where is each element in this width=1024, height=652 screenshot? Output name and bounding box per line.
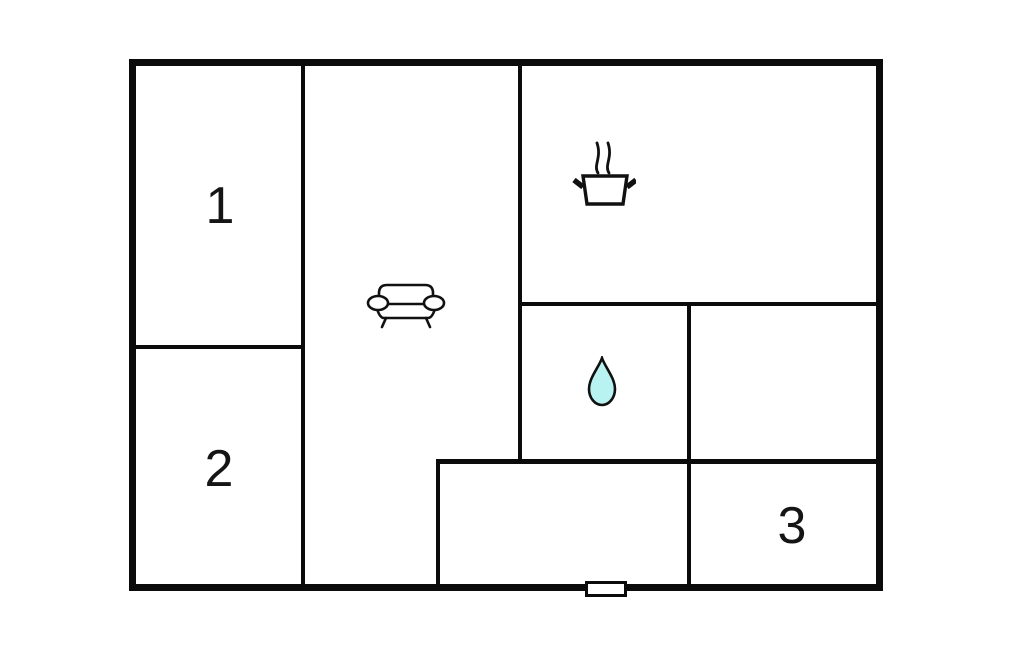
wall-livingroom-right	[518, 66, 522, 463]
wall-room3-top	[436, 459, 876, 464]
floorplan-canvas: 1 2 3	[0, 0, 1024, 652]
sofa-icon	[366, 278, 446, 330]
wall-left-column-divider	[301, 66, 305, 584]
room-2-label: 2	[159, 441, 279, 497]
cooking-pot-icon	[572, 138, 636, 210]
water-drop-icon	[586, 356, 618, 408]
door-marker	[585, 581, 627, 597]
wall-entry-left	[436, 459, 440, 584]
water-drop-shape	[589, 358, 615, 405]
wall-bathroom-right	[687, 302, 691, 584]
wall-kitchen-bottom	[518, 302, 876, 306]
room-3-label: 3	[732, 498, 852, 554]
room-1-label: 1	[160, 178, 280, 234]
wall-room1-room2-divider	[136, 345, 301, 349]
